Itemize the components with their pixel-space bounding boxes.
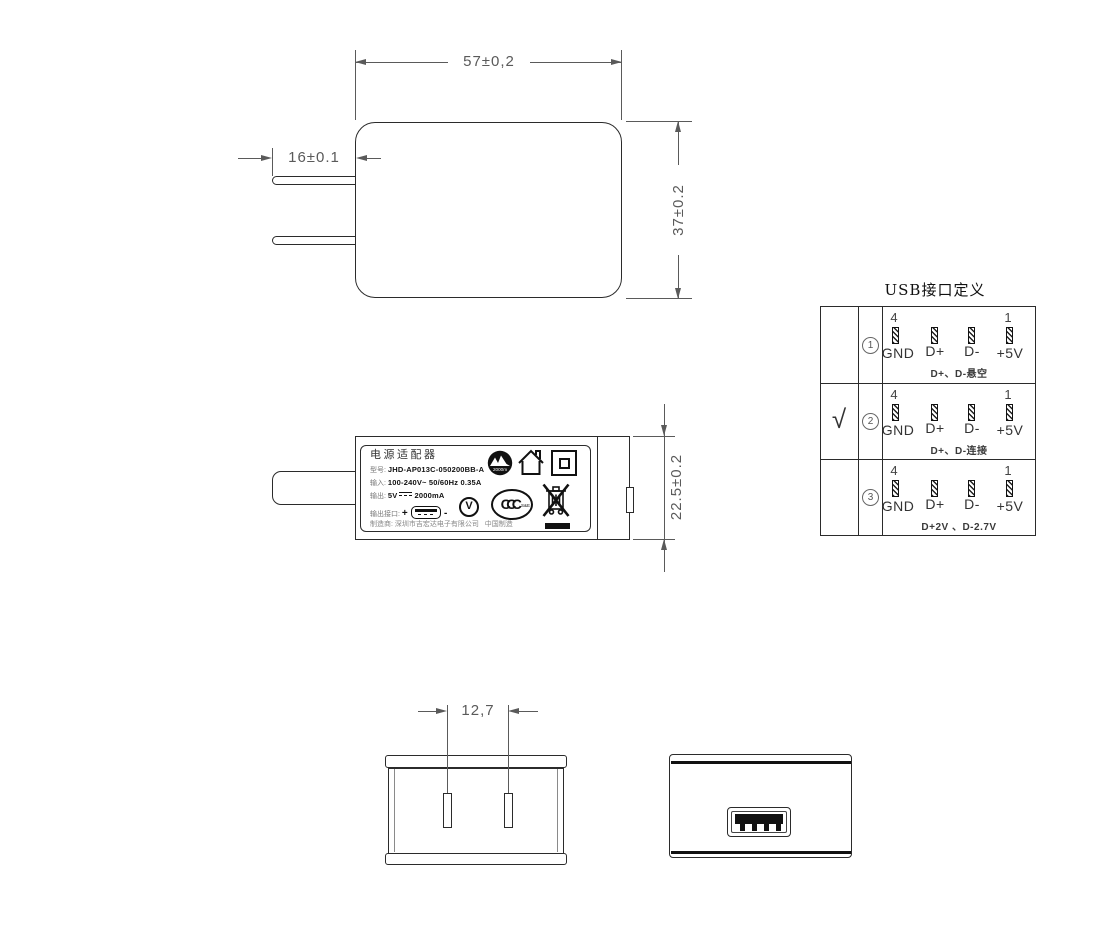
pin-contact-icon: [968, 327, 975, 344]
mfr-value: 深圳市吉宏达电子有限公司: [395, 521, 479, 528]
pin-row-3: 4 1 GND D+ D- +5V D+2V 、D-2.7V: [882, 459, 1036, 536]
pin-label-gnd: GND: [878, 422, 918, 438]
input-value: 100-240V~ 50/60Hz 0.35A: [388, 478, 482, 487]
pin-contact-icon: [892, 327, 899, 344]
usb-connector-icon: [411, 506, 441, 519]
dimension-tail: [418, 711, 437, 712]
row-number-badge: 3: [862, 489, 879, 506]
table-column-line: [858, 307, 859, 535]
ac-plug-barrel: [272, 471, 356, 505]
pin-label-dplus: D+: [920, 496, 950, 512]
label-model-row: 型号: JHD-AP013C-050200BB-A: [370, 465, 484, 475]
pin-number-1: 1: [1000, 463, 1016, 478]
usb-table-title: USB接口定义: [845, 279, 1025, 300]
arrowhead-icon: [611, 59, 622, 65]
pin-label-gnd: GND: [878, 498, 918, 514]
row-number-badge: 2: [862, 413, 879, 430]
pin-number-4: 4: [886, 387, 902, 402]
usb-contact: [752, 824, 757, 831]
pin-contact-icon: [1006, 327, 1013, 344]
pin-contact-icon: [931, 327, 938, 344]
arrowhead-icon: [261, 155, 272, 161]
pin-contact-icon: [1006, 480, 1013, 497]
pin-row-1: 4 1 GND D+ D- +5V D+、D-悬空: [882, 306, 1036, 383]
dc-symbol-icon: [399, 492, 412, 499]
arrowhead-icon: [508, 708, 519, 714]
pin-contact-icon: [931, 404, 938, 421]
model-value: JHD-AP013C-050200BB-A: [388, 465, 484, 474]
pin-label-dminus: D-: [956, 343, 988, 359]
pin-label-5v: +5V: [988, 498, 1032, 514]
usb-tongue: [735, 814, 783, 824]
input-label: 输入:: [370, 480, 386, 487]
arrowhead-icon: [356, 155, 367, 161]
usb-face-bottom-band: [671, 851, 851, 854]
plug-face-top-cap: [385, 755, 567, 768]
port-plus: +: [402, 508, 408, 519]
ccc-text: CCC: [501, 491, 518, 518]
dim-front-width: 57±0,2: [448, 54, 530, 70]
body-seam-line: [557, 769, 558, 852]
mfr-label: 制造商:: [370, 521, 393, 528]
usb-face-outline: [669, 754, 852, 858]
dimension-tail: [238, 158, 262, 159]
output-voltage: 5V: [388, 491, 398, 500]
label-title: 电源适配器: [370, 449, 438, 462]
pin-row-2: 4 1 GND D+ D- +5V D+、D-连接: [882, 383, 1036, 459]
port-minus: -: [444, 508, 448, 519]
pin-contact-icon: [968, 404, 975, 421]
efficiency-v-icon: V: [459, 497, 479, 517]
ac-prong-top: [272, 176, 356, 185]
prong-slot-left: [443, 793, 452, 828]
arrowhead-icon: [675, 121, 681, 132]
usb-contact: [776, 824, 781, 831]
pin-label-5v: +5V: [988, 422, 1032, 438]
extension-line: [447, 705, 448, 793]
pin-row-note: D+2V 、D-2.7V: [882, 518, 1036, 533]
dimension-tail: [519, 711, 538, 712]
dim-side-thickness: 22.5±0.2: [669, 432, 685, 542]
arrowhead-icon: [675, 288, 681, 299]
usb-port-notch: [626, 487, 634, 513]
dim-prong-pitch: 12,7: [452, 703, 504, 719]
label-mfr-row: 制造商: 深圳市吉宏达电子有限公司 中国制造: [370, 520, 513, 529]
made-in: 中国制造: [485, 521, 513, 528]
prong-slot-right: [504, 793, 513, 828]
pin-number-1: 1: [1000, 387, 1016, 402]
extension-line: [626, 121, 692, 122]
usb-contact: [764, 824, 769, 831]
usb-face-top-band: [671, 761, 851, 764]
pin-row-note: D+、D-连接: [882, 442, 1036, 457]
row-number-badge: 1: [862, 337, 879, 354]
adapter-front-outline: [355, 122, 622, 298]
pin-label-dplus: D+: [920, 343, 950, 359]
pin-label-dminus: D-: [956, 420, 988, 436]
ccc-mark-icon: CCC S&E: [491, 489, 533, 520]
output-label: 输出:: [370, 493, 386, 500]
pin-contact-icon: [892, 404, 899, 421]
indoor-use-house-icon: [516, 447, 546, 477]
pin-contact-icon: [892, 480, 899, 497]
label-output-row: 输出: 5V2000mA: [370, 491, 444, 501]
pin-contact-icon: [1006, 404, 1013, 421]
pin-number-4: 4: [886, 310, 902, 325]
label-port-row: 输出接口: +-: [370, 503, 447, 519]
arrowhead-icon: [436, 708, 447, 714]
ccc-small-text: S&E: [521, 503, 530, 508]
pin-row-note: D+、D-悬空: [882, 365, 1036, 380]
pin-contact-icon: [968, 480, 975, 497]
arrowhead-icon: [661, 425, 667, 436]
pin-label-dplus: D+: [920, 420, 950, 436]
body-seam-line: [394, 769, 395, 852]
plug-face-body: [388, 768, 564, 854]
plug-face-bottom-cap: [385, 853, 567, 865]
label-input-row: 输入: 100-240V~ 50/60Hz 0.35A: [370, 478, 482, 488]
pin-label-gnd: GND: [878, 345, 918, 361]
class-ii-icon: [551, 450, 577, 476]
dim-front-height: 37±0.2: [671, 165, 687, 255]
pin-contact-icon: [931, 480, 938, 497]
usb-contact: [740, 824, 745, 831]
technical-drawing-canvas: 57±0,2 16±0.1 37±0.2 电源适配器 型号: JHD-AP013…: [0, 0, 1100, 925]
selected-check-mark: √: [824, 404, 854, 435]
side-front-divider: [597, 437, 598, 539]
ac-prong-bottom: [272, 236, 356, 245]
extension-line: [508, 705, 509, 793]
port-label: 输出接口:: [370, 511, 400, 518]
weee-bin-icon: [542, 483, 570, 521]
arrowhead-icon: [661, 539, 667, 550]
output-current: 2000mA: [414, 491, 444, 500]
weee-bar: [545, 523, 570, 529]
altitude-2000m-icon: 2000m: [487, 450, 513, 476]
pin-label-5v: +5V: [988, 345, 1032, 361]
pin-number-1: 1: [1000, 310, 1016, 325]
extension-line: [272, 148, 273, 176]
extension-line: [626, 298, 692, 299]
dimension-tail: [367, 158, 381, 159]
dim-prong-length: 16±0.1: [276, 150, 352, 166]
pin-number-4: 4: [886, 463, 902, 478]
pin-label-dminus: D-: [956, 496, 988, 512]
efficiency-letter: V: [465, 500, 472, 512]
model-label: 型号:: [370, 467, 386, 474]
svg-text:2000m: 2000m: [493, 467, 507, 472]
arrowhead-icon: [355, 59, 366, 65]
